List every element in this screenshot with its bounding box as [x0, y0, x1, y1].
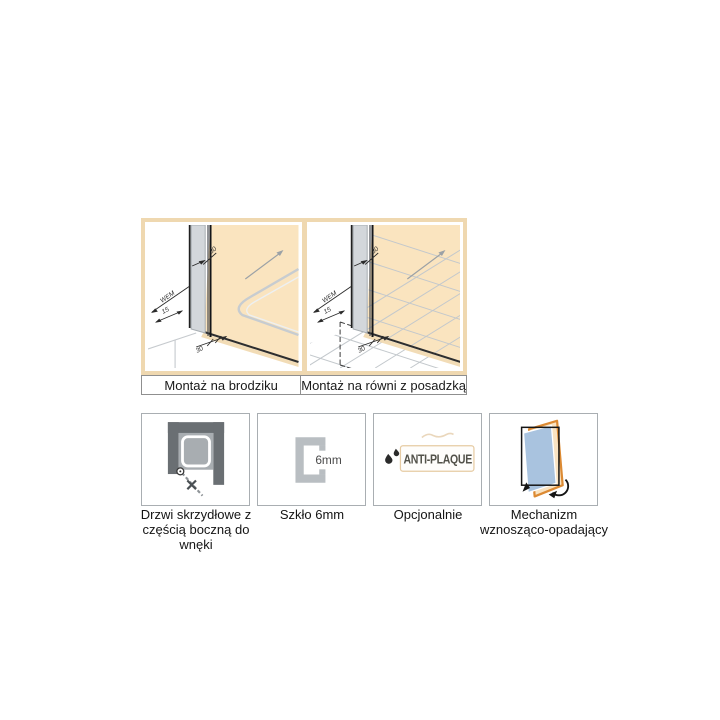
tray-mount-drawing: 30 WEM 15 30: [148, 225, 299, 368]
diagram-captions: Montaż na brodziku Montaż na równi z pos…: [141, 375, 467, 395]
rise-fall-door-icon: [514, 418, 574, 502]
feature-box-glass: 6mm: [257, 413, 366, 506]
feature-box-rise-fall: [489, 413, 598, 506]
water-drop-icon: [385, 453, 392, 463]
hinged-door-plan-icon: [165, 420, 227, 500]
caption-flush-mount: Montaż na równi z posadzką: [300, 375, 467, 395]
dim-label-15: 15: [322, 306, 332, 316]
dim-label-15: 15: [161, 306, 171, 316]
anti-plaque-text: ANTI-PLAQUE: [403, 451, 472, 466]
feature-label-glass: Szkło 6mm: [247, 507, 377, 522]
feature-label-hinged-door: Drzwi skrzydłowe z częścią boczną do wnę…: [131, 507, 261, 552]
logo-script-flourish: [421, 433, 453, 437]
glass-thickness-text: 6mm: [315, 453, 341, 467]
diagram-flush-mount: 30 WEM 15 30: [307, 222, 464, 371]
feature-box-hinged-door: [141, 413, 250, 506]
feature-label-rise-fall: Mechanizm wznosząco-opadający: [479, 507, 609, 537]
water-drop-small-icon: [393, 448, 399, 455]
caption-tray-mount: Montaż na brodziku: [141, 375, 301, 395]
diagram-tray-mount: 30 WEM 15 30: [145, 222, 302, 371]
catalog-page: 30 WEM 15 30: [0, 0, 720, 720]
glass-profile-icon: 6mm: [271, 429, 353, 491]
mounting-diagrams: 30 WEM 15 30: [141, 218, 467, 375]
flush-mount-drawing: 30 WEM 15 30: [310, 225, 461, 368]
anti-plaque-logo-icon: ANTI-PLAQUE: [379, 425, 477, 495]
feature-label-optional: Opcjonalnie: [363, 507, 493, 522]
feature-box-antiplaque: ANTI-PLAQUE: [373, 413, 482, 506]
